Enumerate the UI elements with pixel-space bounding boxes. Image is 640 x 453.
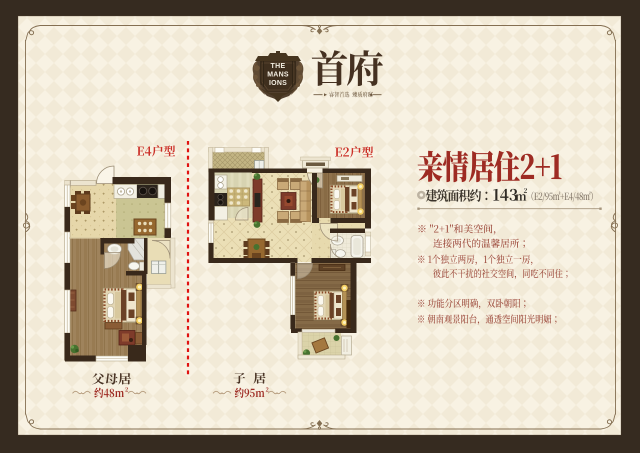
svg-text:MANS: MANS [267,72,289,79]
svg-text:THE: THE [271,63,286,70]
svg-text:IONS: IONS [269,80,287,87]
